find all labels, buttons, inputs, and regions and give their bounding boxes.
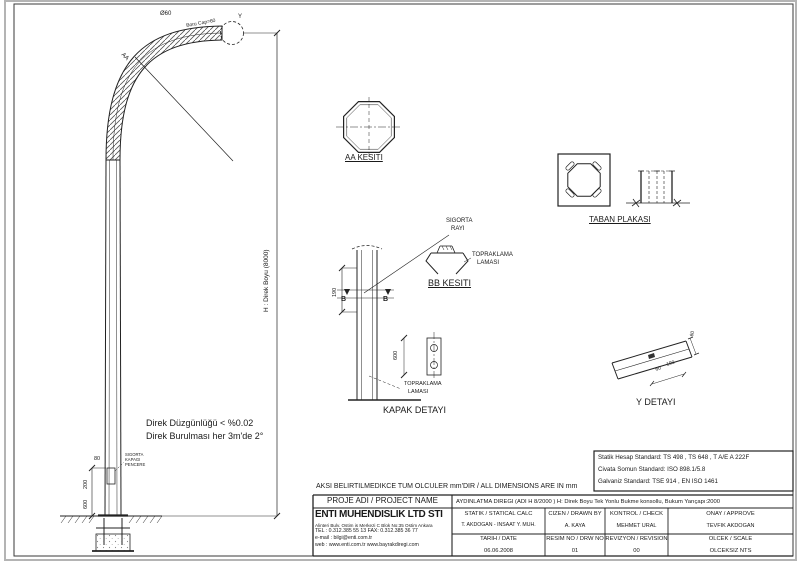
topraklama-kapak-label-2: LAMASI <box>408 389 428 395</box>
tarih-value: 06.06.2008 <box>452 548 545 554</box>
topraklama-bb-label-1: TOPRAKLAMA <box>472 252 513 259</box>
kapak-detail <box>337 235 449 400</box>
base-window-label-3: PENCERE <box>125 463 145 468</box>
resim-value: 01 <box>545 548 605 554</box>
y-detail-title: Y DETAYI <box>636 398 676 408</box>
resim-label: RESIM NO / DRW NO <box>545 536 605 542</box>
y-detail <box>612 337 699 386</box>
detail-y-balloon-label: Y <box>238 14 242 21</box>
standard-civata: Civata Somun Standard: ISO 898.1/5.8 <box>598 467 705 474</box>
note-twist: Direk Burulması her 3m'de 2° <box>146 432 263 442</box>
company-web: web : www.enti.com.tr www.bayrakdiregi.c… <box>315 543 419 549</box>
standard-galvaniz: Galvaniz Standard: TSE 914 , EN ISO 1461 <box>598 479 718 486</box>
taban-plakasi-title: TABAN PLAKASI <box>589 216 651 225</box>
topraklama-kapak-label-1: TOPRAKLAMA <box>404 381 442 387</box>
kapak-dim-600: 600 <box>393 351 399 360</box>
pole-height-dimension: H : Direk Boyu (8000) <box>263 250 270 313</box>
drawing-sheet: Ø60 Boru Cap=60 Y AA H : Direk Boyu (800… <box>0 0 800 563</box>
standard-statik: Statik Hesap Standard: TS 498 , TS 648 ,… <box>598 455 749 462</box>
project-name-label: PROJE ADI / PROJECT NAME <box>313 497 452 506</box>
pole-elevation <box>60 22 280 552</box>
dim-600: 600 <box>83 500 89 509</box>
aa-section-title: AA KESITI <box>345 154 383 163</box>
olcek-value: OLCEKSIZ NTS <box>668 548 793 554</box>
section-b-marker-right: B <box>383 296 388 304</box>
tarih-label: TARIH / DATE <box>452 536 545 542</box>
product-header: AYDINLATMA DIREGI (ADI H 8/2000 ) H: Dir… <box>456 499 791 505</box>
company-name: ENTI MUHENDISLIK LTD STI <box>315 509 443 520</box>
pole-tip-diameter-label: Ø60 <box>160 11 171 18</box>
dim-200: 200 <box>83 480 89 489</box>
company-email: e-mail : bilgi@enti.com.tr <box>315 536 372 542</box>
sigorta-rayi-label-1: SIGORTA <box>446 218 472 225</box>
kontrol-value: MEHMET URAL <box>605 523 668 529</box>
revizyon-value: 00 <box>605 548 668 554</box>
statik-value: T. AKDOGAN - INSAAT Y. MUH. <box>452 523 545 529</box>
section-b-marker-left: B <box>341 296 346 304</box>
revizyon-label: REVIZYON / REVISION <box>605 536 668 542</box>
topraklama-bb-label-2: LAMASI <box>477 260 499 267</box>
kapak-detail-title: KAPAK DETAYI <box>383 406 446 416</box>
note-straightness: Direk Düzgünlüğü < %0.02 <box>146 419 253 429</box>
dim-80: 80 <box>94 456 100 462</box>
olcek-label: OLCEK / SCALE <box>668 536 793 542</box>
units-note: AKSI BELIRTILMEDIKCE TUM OLCULER mm'DIR … <box>316 483 577 491</box>
statik-label: STATIK / STATICAL CALC <box>452 511 545 517</box>
cizen-label: CIZEN / DRAWN BY <box>545 511 605 517</box>
company-phone: TEL : 0.312.385 55 13 FAX: 0.312.385 36 … <box>315 529 418 535</box>
dim-190: 190 <box>332 288 338 297</box>
onay-label: ONAY / APPROVE <box>668 511 793 517</box>
aa-section <box>336 97 402 158</box>
bb-section <box>426 246 471 274</box>
cizen-value: A. KAYA <box>545 523 605 529</box>
bb-section-title: BB KESITI <box>428 279 471 289</box>
onay-value: TEVFIK AKDOGAN <box>668 523 793 529</box>
taban-plakasi <box>558 154 690 207</box>
kontrol-label: KONTROL / CHECK <box>605 511 668 517</box>
sigorta-rayi-label-2: RAYI <box>451 226 465 233</box>
